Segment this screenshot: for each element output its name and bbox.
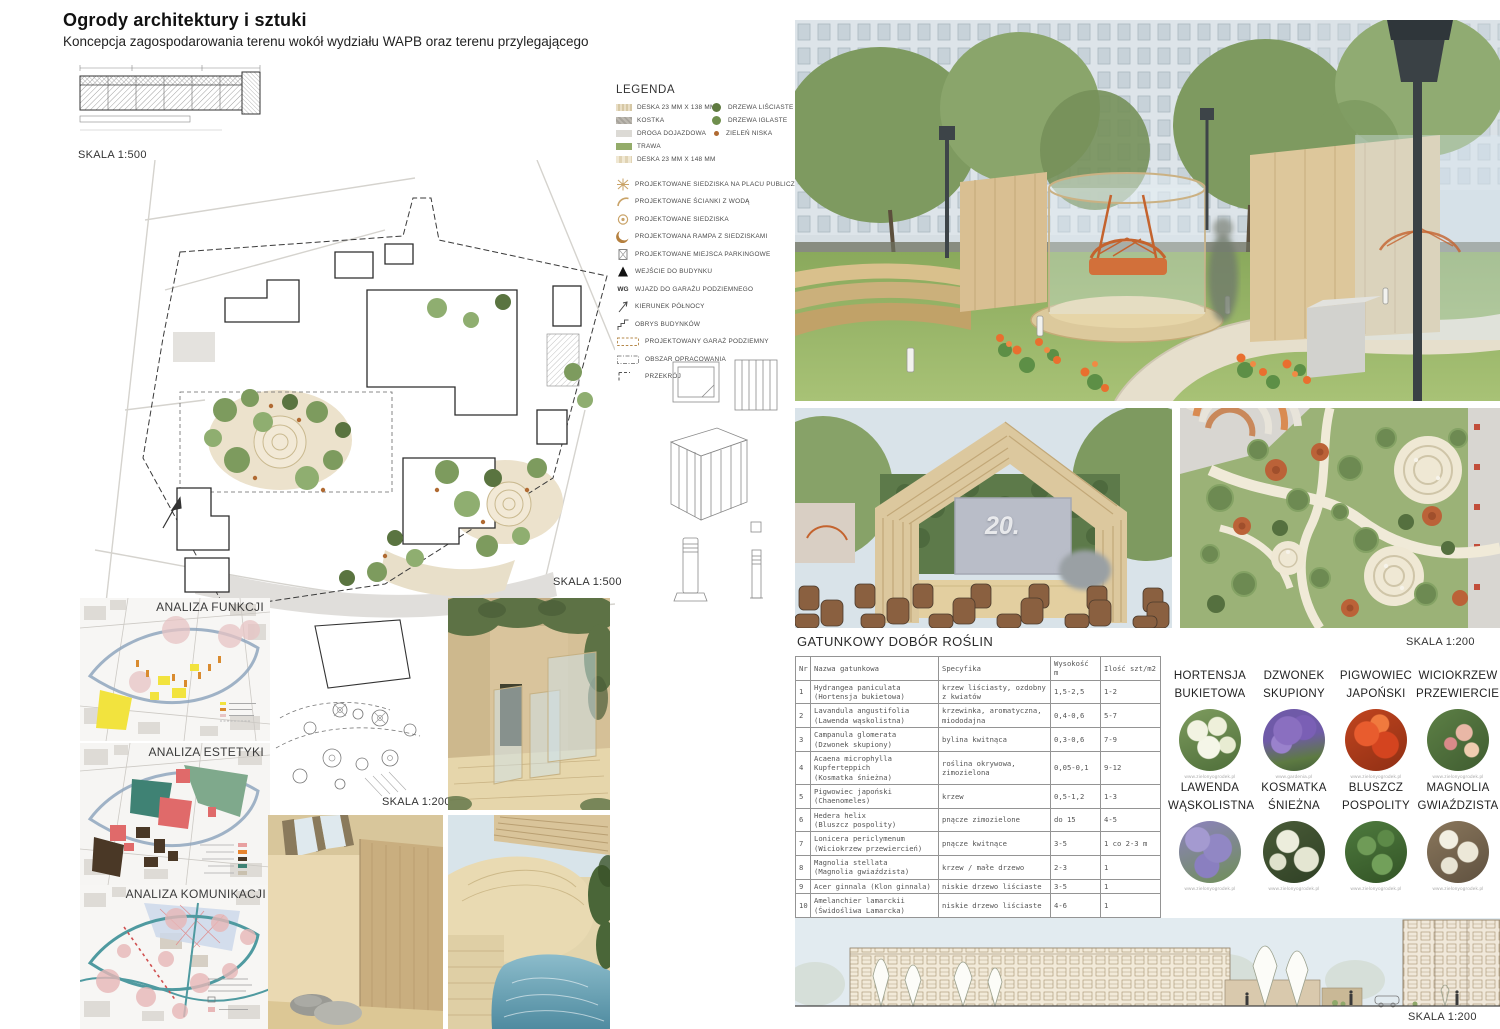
legend-item: DRZEWA LIŚCIASTE [712, 102, 796, 112]
plant-card: HORTENSJABUKIETOWA www.zielonyogrodek.pl [1168, 668, 1252, 779]
plant-table: Nr Nazwa gatunkowa Specyfika Wysokość m … [795, 656, 1161, 942]
analysis-estetyki-title: ANALIZA ESTETYKI [148, 745, 264, 759]
analysis-komunikacji-svg [80, 885, 270, 1029]
render-stage-image: 20. [795, 408, 1172, 633]
section-strip-drawing [72, 60, 272, 157]
furniture-details-svg [655, 358, 790, 608]
plant-card: KOSMATKAŚNIEŻNA www.zielonyogrodek.pl [1252, 780, 1336, 891]
plant-photo [1263, 709, 1325, 771]
legend-item: WEJŚCIE DO BUDYNKU [616, 266, 796, 278]
legend-item: PROJEKTOWANE MIEJSCA PARKINGOWE [616, 248, 796, 260]
legend-item: WGWJAZD DO GARAŻU PODZIEMNEGO [616, 283, 796, 295]
table-row: 2Lavandula angustifolia(Lawenda wąskolis… [796, 704, 1161, 728]
plant-species-table: Nr Nazwa gatunkowa Specyfika Wysokość m … [795, 656, 1161, 942]
furniture-detail-drawings [655, 358, 790, 613]
plant-photo [1179, 821, 1241, 883]
detail-plan-svg [270, 618, 445, 798]
legend-item: PROJEKTOWANY GARAŻ PODZIEMNY [616, 336, 796, 348]
scale-label-main-plan: SKALA 1:500 [553, 576, 622, 588]
plant-card: DZWONEKSKUPIONY www.gardenia.pl [1252, 668, 1336, 779]
seating-icon [616, 213, 630, 226]
table-row: 4Acaena microphylla Kupferteppich(Kosmat… [796, 751, 1161, 784]
plant-photo [1427, 821, 1489, 883]
material-swatch [616, 143, 632, 150]
legend-item: DRZEWA IGLASTE [712, 115, 796, 125]
garage-entry-icon: WG [616, 283, 630, 296]
render-garden-svg [795, 20, 1500, 401]
legend-item: PROJEKTOWANE SIEDZISKA [616, 213, 796, 225]
plants-gallery: HORTENSJABUKIETOWA www.zielonyogrodek.pl… [1168, 668, 1500, 908]
plant-photo [1345, 821, 1407, 883]
plant-card: WICIOKRZEWPRZEWIERCIEŃ www.zielonyogrode… [1416, 668, 1500, 779]
water-wall-icon [616, 195, 630, 208]
elevation-svg [795, 918, 1500, 1010]
legend-item: DESKA 23 MM X 148 MM [616, 154, 712, 164]
legend-materials: DESKA 23 MM X 138 MM KOSTKA DROGA DOJAZD… [616, 102, 712, 167]
main-site-plan-svg [85, 160, 615, 630]
plant-photo [1179, 709, 1241, 771]
legend-item: ZIELEŃ NISKA [712, 128, 796, 138]
ramp-seating-icon [616, 230, 630, 243]
public-plaza-seating-icon [616, 178, 630, 191]
low-greenery-icon [714, 131, 719, 136]
table-row: 10Amelanchier lamarckii(Świdośliwa Lamar… [796, 894, 1161, 918]
section-strip-svg [72, 60, 272, 152]
scale-label-right-plan: SKALA 1:200 [1406, 636, 1475, 648]
table-row: 6Hedera helix(Bluszcz pospolity)pnącze z… [796, 808, 1161, 832]
analysis-komunikacji-title: ANALIZA KOMUNIKACJI [126, 887, 266, 901]
north-direction-icon [616, 300, 630, 313]
plant-photo [1263, 821, 1325, 883]
legend-item: DROGA DOJAZDOWA [616, 128, 712, 138]
stage-screen-text: 20. [985, 512, 1020, 541]
legend: LEGENDA DESKA 23 MM X 138 MM KOSTKA DROG… [616, 84, 796, 102]
parking-icon [616, 248, 630, 261]
material-swatch [616, 156, 632, 163]
presentation-board: Ogrody architektury i sztuki Koncepcja z… [0, 0, 1500, 1029]
material-swatch [616, 104, 632, 111]
scale-label-detail-plan: SKALA 1:200 [382, 796, 451, 808]
legend-vegetation: DRZEWA LIŚCIASTE DRZEWA IGLASTE ZIELEŃ N… [712, 102, 796, 141]
legend-item: KIERUNEK PÓŁNOCY [616, 301, 796, 313]
table-row: 8Magnolia stellata(Magnolia gwiaździsta)… [796, 856, 1161, 880]
table-header-row: Nr Nazwa gatunkowa Specyfika Wysokość m … [796, 657, 1161, 681]
deciduous-tree-icon [712, 103, 721, 112]
elevation-drawing [795, 918, 1500, 1015]
analysis-funkcji-title: ANALIZA FUNKCJI [156, 600, 264, 614]
detail-plan-drawing [270, 618, 445, 803]
underground-garage-icon [616, 335, 640, 348]
plant-card: PIGWOWIECJAPOŃSKI www.zielonyogrodek.pl [1334, 668, 1418, 779]
legend-item: PROJEKTOWANA RAMPA Z SIEDZISKAMI [616, 231, 796, 243]
render-curved-wall-pool-image [448, 815, 610, 1029]
table-row: 9Acer ginnala (Klon ginnala)niskie drzew… [796, 879, 1161, 893]
study-area-icon [616, 353, 640, 366]
building-outline-icon [616, 318, 630, 331]
page-subtitle: Koncepcja zagospodarowania terenu wokół … [63, 34, 589, 49]
render-wood-interior-svg [268, 815, 443, 1029]
render-stage-svg [795, 408, 1172, 628]
render-courtyard-image [448, 598, 610, 815]
legend-symbols: PROJEKTOWANE SIEDZISKA NA PLACU PUBLICZN… [616, 178, 796, 388]
building-entrance-icon [616, 265, 630, 278]
material-swatch [616, 117, 632, 124]
legend-item: DESKA 23 MM X 138 MM [616, 102, 712, 112]
analysis-estetyki-svg [80, 743, 270, 885]
table-row: 3Campanula glomerata(Dzwonek skupiony)by… [796, 728, 1161, 752]
conifer-tree-icon [712, 116, 721, 125]
section-mark-icon [616, 370, 640, 383]
table-row: 1Hydrangea paniculata(Hortensja bukietow… [796, 680, 1161, 704]
legend-item: TRAWA [616, 141, 712, 151]
plant-card: LAWENDAWĄSKOLISTNA www.zielonyogrodek.pl [1168, 780, 1252, 891]
render-wood-interior-image [268, 815, 443, 1029]
analysis-funkcji-map: ANALIZA FUNKCJI [80, 598, 270, 746]
legend-title: LEGENDA [616, 84, 796, 96]
table-row: 7Lonicera periclymenum(Wiciokrzew przewi… [796, 832, 1161, 856]
render-courtyard-svg [448, 598, 610, 810]
page-title: Ogrody architektury i sztuki [63, 10, 307, 31]
table-row: 5Pigwowiec japoński(Chaenomeles)krzew0,5… [796, 784, 1161, 808]
plant-card: BLUSZCZPOSPOLITY www.zielonyogrodek.pl [1334, 780, 1418, 891]
material-swatch [616, 130, 632, 137]
analysis-komunikacji-map: ANALIZA KOMUNIKACJI [80, 885, 270, 1029]
scale-label-elevation: SKALA 1:200 [1408, 1011, 1477, 1023]
plant-photo [1345, 709, 1407, 771]
legend-item: PROJEKTOWANE ŚCIANKI Z WODĄ [616, 196, 796, 208]
plant-photo [1427, 709, 1489, 771]
legend-item: OBRYS BUDYNKÓW [616, 318, 796, 330]
render-plan-view-svg [1180, 408, 1500, 628]
plant-table-title: GATUNKOWY DOBÓR ROŚLIN [797, 634, 993, 649]
render-pool-svg [448, 815, 610, 1029]
render-garden-main-image [795, 20, 1500, 406]
legend-item: KOSTKA [616, 115, 712, 125]
main-site-plan [85, 160, 615, 635]
legend-item: PROJEKTOWANE SIEDZISKA NA PLACU PUBLICZN… [616, 178, 796, 190]
plant-card: MAGNOLIAGWIAŹDZISTA www.zielonyogrodek.p… [1416, 780, 1500, 891]
render-plan-view-image [1180, 408, 1500, 633]
analysis-estetyki-map: ANALIZA ESTETYKI [80, 743, 270, 890]
analysis-funkcji-svg [80, 598, 270, 741]
